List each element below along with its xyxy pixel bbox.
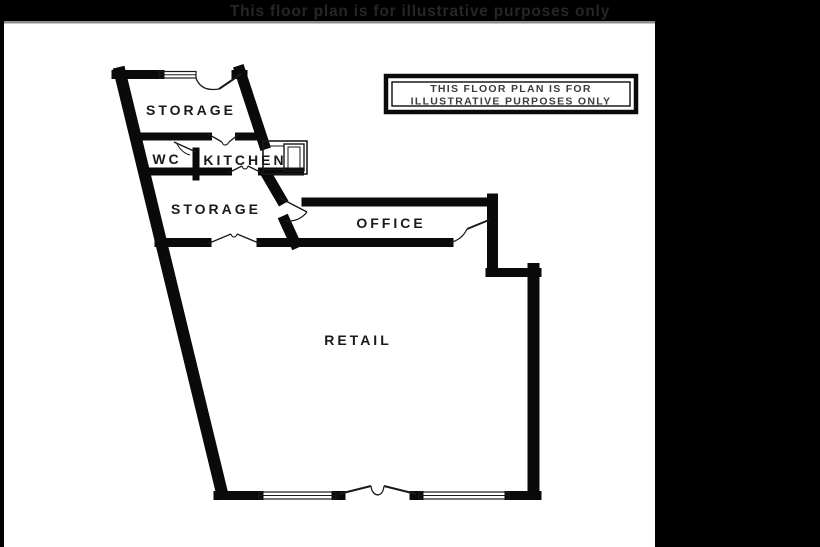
room-label-wc: WC bbox=[152, 151, 181, 167]
room-label-retail: RETAIL bbox=[324, 332, 392, 348]
left-border-bar bbox=[0, 0, 4, 547]
floor-plan-page: This floor plan is for illustrative purp… bbox=[0, 0, 820, 547]
floor-plan-canvas: This floor plan is for illustrative purp… bbox=[0, 0, 820, 547]
right-black-panel bbox=[655, 0, 820, 547]
notice-box-line2: ILLUSTRATIVE PURPOSES ONLY bbox=[411, 96, 612, 108]
room-label-office: OFFICE bbox=[356, 215, 425, 231]
room-label-storage-mid: STORAGE bbox=[171, 201, 261, 217]
room-label-kitchen: KITCHEN bbox=[203, 152, 286, 168]
notice-box-line1: THIS FLOOR PLAN IS FOR bbox=[430, 83, 592, 95]
room-label-storage-top: STORAGE bbox=[146, 102, 236, 118]
notice-box: THIS FLOOR PLAN IS FOR ILLUSTRATIVE PURP… bbox=[386, 76, 636, 112]
banner-title: This floor plan is for illustrative purp… bbox=[230, 3, 610, 20]
